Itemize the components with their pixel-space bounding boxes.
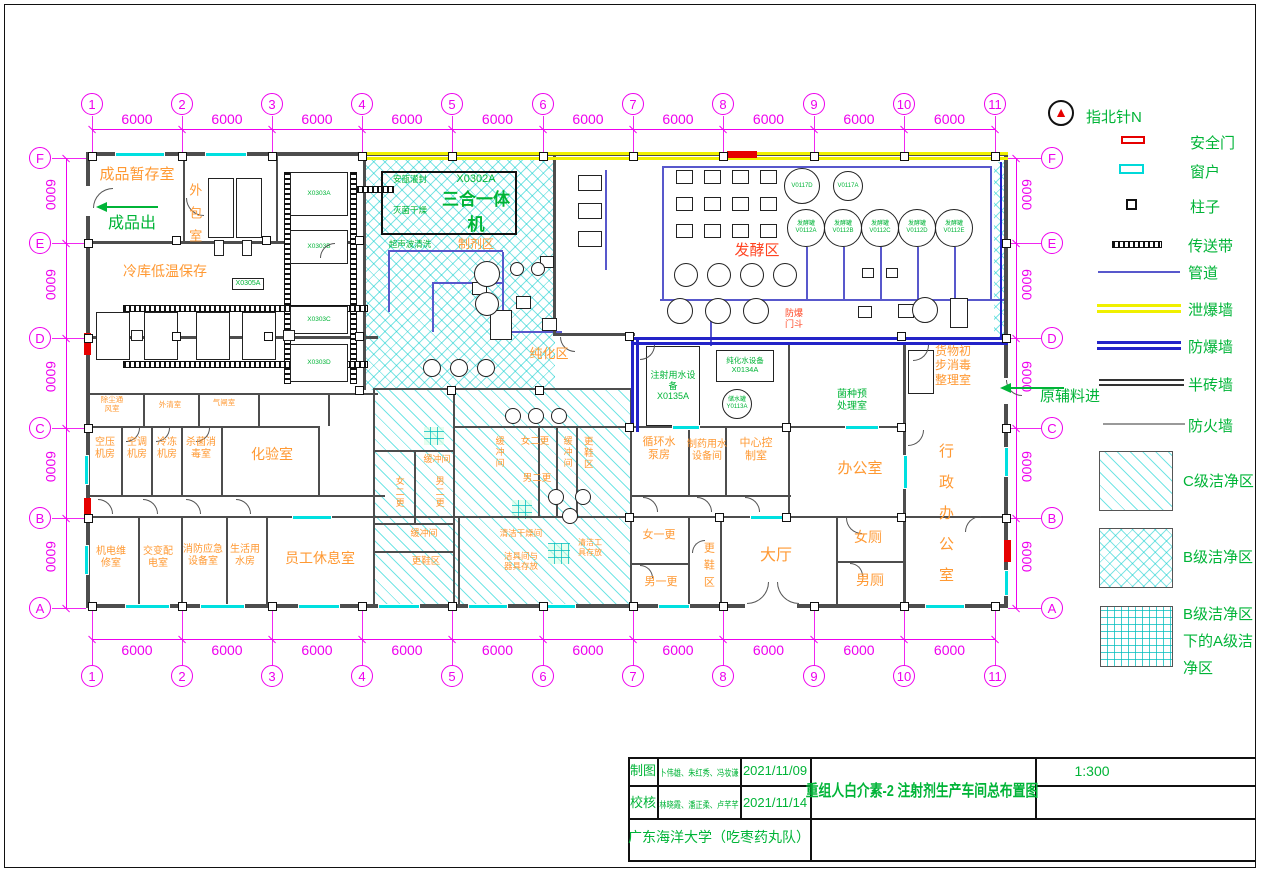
room-label: 货物初 步消毒 整理室 [935,344,971,387]
room-label: 缓冲间 [423,454,450,465]
equipment-box: X0303C [290,306,348,334]
room-label: 制药用水 设备间 [687,439,727,463]
check-names: 林晓霞、潘正柔、卢芊芊 [659,798,738,811]
dim-label: 6000 [1020,179,1034,210]
equipment-tank [707,263,731,287]
room-label: 气闸室 [213,398,236,407]
room-label: 除尘通 风室 [101,395,124,413]
equipment-box [704,197,721,211]
wall [375,523,453,525]
window [468,604,508,609]
equipment-tank [423,359,441,377]
equipment-tank [510,262,524,276]
room-label: 机电维 修室 [96,546,126,570]
check-date: 2021/11/14 [743,795,807,811]
equipment-tank: V0117D [784,168,820,204]
equipment-box [676,197,693,211]
equipment-box [760,170,777,184]
window [200,604,245,609]
equipment-tank [477,359,495,377]
pipe [880,247,882,301]
grid-circle-bottom: 4 [351,665,373,687]
grid-ext-line [1008,158,1041,159]
structural-column [268,602,277,611]
grid-ext-line [1008,428,1041,429]
wall [375,551,453,553]
pipe [432,282,434,332]
pipe-icon [1098,271,1180,273]
structural-column [268,152,277,161]
wall [328,395,330,426]
wall [788,345,790,518]
grid-ext-line [52,428,86,429]
equipment-tank [531,262,545,276]
door-arc [745,497,760,512]
wall [553,333,635,336]
structural-column [539,152,548,161]
wall [720,516,722,606]
wall [373,388,375,606]
equipment-box [950,298,968,328]
fire-wall-icon [1103,423,1185,425]
door-arc [98,499,113,514]
equipment-box [242,240,252,256]
equipment-box [542,318,557,331]
window [125,604,170,609]
room-label: 菌种预 处理室 [837,389,867,413]
room-label: 男厕 [856,572,884,589]
equipment-tank: 发酵罐 V0112A [787,209,825,247]
room-label: 更鞋区 [412,556,441,567]
door-arc [143,499,158,514]
structural-column [629,152,638,161]
pipe [662,166,664,301]
grid-circle-left: A [29,597,51,619]
drawing-scale: 1:300 [1074,763,1109,780]
equipment-box: 纯化水设备 X0134A [716,350,774,382]
grid-ext-line [272,116,273,152]
grid-circle-right: B [1041,507,1063,529]
room-label: 男二更 [523,473,552,484]
grid-ext-line [995,116,996,152]
structural-column [264,332,273,341]
pipe [954,247,956,301]
structural-column [88,602,97,611]
room-label: 女一更 [643,529,676,542]
window-icon [1119,164,1144,174]
structural-column [900,602,909,611]
structural-column [355,332,364,341]
structural-column [1002,424,1011,433]
grid-circle-left: E [29,232,51,254]
structural-column [358,602,367,611]
grid-ext-line [543,116,544,152]
wall [88,495,385,497]
dim-label: 6000 [482,642,513,659]
north-label: 指北针N [1086,106,1142,127]
room-label: 中心控 制室 [740,437,773,463]
door-arc [965,516,981,532]
grid-circle-bottom: 1 [81,665,103,687]
structural-column [84,514,93,523]
equipment-box [760,197,777,211]
door-arc [236,499,251,514]
grid-ext-line [52,608,86,609]
wall [362,152,1008,155]
grid-ext-line [1008,243,1041,244]
dim-label: 6000 [211,642,242,659]
structural-column [991,602,1000,611]
room-label: 冷库低温保存 [123,263,207,280]
grid-circle-bottom: 6 [532,665,554,687]
legend-label-fire-wall: 防火墙 [1188,415,1233,436]
dim-label: 6000 [211,111,242,128]
grid-ext-line [452,116,453,152]
column-icon [1126,199,1137,210]
clean-c-swatch [1099,451,1173,511]
wall [631,337,1008,340]
grid-circle-bottom: 5 [441,665,463,687]
equipment-tank [450,359,468,377]
grid-ext-line [723,116,724,152]
grid-circle-right: D [1041,327,1063,349]
equipment-box [236,178,262,238]
dim-label: 6000 [121,111,152,128]
structural-column [810,152,819,161]
room-label: 办公室 [837,460,882,478]
grid-circle-left: F [29,147,51,169]
structural-column [715,513,724,522]
door-arc [777,582,799,604]
equipment-box [886,268,898,278]
pipe [843,247,845,301]
room-label: 空调 机房 [127,437,147,461]
structural-column [897,423,906,432]
zone-label-preparation: 制剂区 [437,235,515,252]
grid-circle-top: 11 [984,93,1006,115]
room-label: 女二更 [395,476,404,509]
wall [86,152,90,608]
equipment-box: X0303A [290,172,348,216]
structural-column [178,152,187,161]
window [845,425,879,430]
legend-label-clean-b: B级洁净区 [1183,546,1253,567]
equipment-box [704,224,721,238]
flow-arrow-head [96,202,107,212]
window [672,425,700,430]
grid-circle-top: 9 [803,93,825,115]
wall [84,186,92,216]
equipment-box: X0305A [232,278,264,290]
wall [631,495,791,497]
safety-door-icon [1121,136,1145,144]
window [925,604,965,609]
grid-ext-line [904,608,905,666]
dim-label: 6000 [301,111,332,128]
window [84,455,89,485]
grid-ext-line [52,158,86,159]
equipment-tank [475,292,499,316]
wall [553,156,556,335]
legend-label-blast-wall: 防爆墙 [1188,336,1233,357]
dim-label: 6000 [44,541,58,572]
structural-column [719,152,728,161]
legend-label-window: 窗户 [1190,161,1220,182]
draw-date: 2021/11/09 [743,763,807,779]
grid-circle-bottom: 11 [984,665,1006,687]
grid-ext-line [452,608,453,666]
equipment-tank [773,263,797,287]
room-label: 大厅 [760,546,792,565]
room-label: 消防应急 设备室 [183,544,223,568]
wall [276,156,278,243]
dim-label: 6000 [301,642,332,659]
equipment-tank [575,489,591,505]
door-arc [186,499,201,514]
window [378,604,420,609]
dim-label: 6000 [753,642,784,659]
pipe [806,247,808,301]
grid-ext-line [52,518,86,519]
grid-ext-line [92,608,93,666]
machine-name: 三合一体机 [437,185,515,235]
drawing-title: 重组人白介素-2 注射剂生产车间总布置图 [806,777,1039,801]
structural-column [172,236,181,245]
equipment-tank [705,298,731,324]
dim-label: 6000 [843,111,874,128]
dim-label: 6000 [662,111,693,128]
grid-circle-bottom: 9 [803,665,825,687]
equipment-tank: 储水罐 Y0113A [722,389,752,419]
equipment-tank [740,263,764,287]
legend-label-clean-a: B级洁净区 下的A级洁 净区 [1183,601,1253,682]
grid-circle-bottom: 7 [622,665,644,687]
window [903,455,908,489]
dim-label: 6000 [121,642,152,659]
dim-label: 6000 [391,111,422,128]
structural-column [355,386,364,395]
machine-line2a: 灭菌干燥 [383,204,437,216]
equipment-box [676,224,693,238]
grid-ext-line [995,608,996,666]
structural-column [810,602,819,611]
structural-column [355,236,364,245]
window [205,152,247,157]
grid-ext-line [92,116,93,152]
room-label: 成品出 [108,214,156,233]
equipment-box: 注射用水设备 X0135A [646,346,700,426]
grid-circle-right: C [1041,417,1063,439]
structural-column [625,423,634,432]
structural-column [1002,239,1011,248]
room-label: 缓冲间 [410,528,437,539]
room-label: 更鞋区 [582,436,592,471]
room-label: 清洁工 具存放 [578,538,602,557]
structural-column [262,236,271,245]
floor-plan: X0303AX0303BX0303CX0303DX0305A注射用水设备 X01… [0,0,1265,874]
room-label: 男一更 [645,576,678,589]
structural-column [625,332,634,341]
wall [1000,162,1002,338]
draw-names: 卜伟雄、朱红秀、冯妆谦 [659,766,738,779]
three-in-one-machine: 安瓿灌封 X0302A 灭菌干燥 三合一体机 超声波清洗 制剂区 [381,171,517,235]
drawing-page: X0303AX0303BX0303CX0303DX0305A注射用水设备 X01… [0,0,1265,874]
equipment-box [732,197,749,211]
structural-column [448,152,457,161]
dim-label: 6000 [572,111,603,128]
structural-column [897,332,906,341]
equipment-box [732,224,749,238]
equipment-tank [912,297,938,323]
grid-circle-left: D [29,327,51,349]
legend-label-vent-wall: 泄爆墙 [1188,299,1233,320]
equipment-tank [562,508,578,524]
equipment-tank: 发酵罐 V0112B [824,209,862,247]
pipe [388,250,390,312]
wall [414,452,416,523]
structural-column [88,152,97,161]
room-label: 行政办公室 [938,443,953,598]
wall [631,337,634,432]
door-arc [697,497,712,512]
wall [258,395,260,426]
equipment-tank: 发酵罐 V0112C [861,209,899,247]
room-label: 化验室 [251,446,293,463]
equipment-box [732,170,749,184]
dim-label: 6000 [44,451,58,482]
window [298,604,340,609]
grid-circle-bottom: 2 [171,665,193,687]
dim-label: 6000 [934,642,965,659]
equipment-box: X0303D [290,344,348,382]
half-brick-wall-icon [1099,379,1184,386]
structural-column [629,602,638,611]
room-label: 男二更 [435,476,444,509]
room-label: 发酵区 [734,242,779,260]
equipment-box [96,312,130,360]
grid-ext-line [52,243,86,244]
equipment-tank [505,408,521,424]
grid-ext-line [1008,518,1041,519]
door-arc [747,582,769,604]
equipment-box [676,170,693,184]
machine-line3a: 超声波清洗 [383,238,437,250]
structural-column [1002,514,1011,523]
structural-column [84,424,93,433]
equipment-box [578,203,602,219]
wall [266,518,268,604]
equipment-box [858,306,872,318]
vent-wall-icon [1097,304,1181,313]
equipment-box [490,310,512,340]
room-label: 缓冲间 [563,436,572,469]
conveyor-icon [1112,241,1162,248]
grid-ext-line [52,338,86,339]
legend-label-conveyor: 传送带 [1188,235,1233,256]
check-label: 校核 [630,795,656,811]
grid-ext-line [362,116,363,152]
room-label: 循环水 泵房 [643,436,676,462]
grid-ext-line [272,608,273,666]
clean-a-swatch [1100,606,1173,667]
dim-label: 6000 [1020,269,1034,300]
wall [226,518,228,604]
equipment-box [578,231,602,247]
grid-ext-line [543,608,544,666]
equipment-tank [743,298,769,324]
equipment-tank: 发酵罐 V0112D [898,209,936,247]
pipe [990,166,992,301]
structural-column [782,513,791,522]
dim-label: 6000 [44,269,58,300]
room-label: 纯化区 [529,346,568,362]
room-label: 外清室 [159,400,182,409]
dim-label: 6000 [44,361,58,392]
north-compass-icon: ▲ [1048,100,1074,126]
equipment-tank: V0117A [833,171,863,201]
structural-column [447,386,456,395]
grid-ext-line [814,608,815,666]
equipment-box [516,296,531,309]
equipment-tank [548,489,564,505]
wall [631,426,791,428]
room-label: 防爆 门斗 [785,308,803,330]
room-label: 员工休息室 [285,550,355,567]
dim-label: 6000 [1020,451,1034,482]
pipe [917,247,919,301]
grid-ext-line [182,116,183,152]
room-label: 成品暂存室 [99,166,174,184]
grid-ext-line [904,116,905,152]
room-label: 外包室 [188,183,201,252]
dim-label: 6000 [843,642,874,659]
door-arc [643,497,658,512]
structural-column [178,602,187,611]
equipment-box [704,170,721,184]
grid-circle-right: A [1041,597,1063,619]
equipment-box [283,330,295,341]
dim-label: 6000 [44,179,58,210]
legend-label-safety-door: 安全门 [1190,132,1235,153]
equipment-box [208,178,234,238]
legend-label-half-brick-wall: 半砖墙 [1188,374,1233,395]
grid-ext-line [723,608,724,666]
structural-column [900,152,909,161]
dim-label: 6000 [753,111,784,128]
dim-label: 6000 [934,111,965,128]
wall [636,337,639,432]
dim-line [66,158,67,608]
grid-circle-top: 5 [441,93,463,115]
dim-label: 6000 [662,642,693,659]
structural-column [539,602,548,611]
structural-column [84,334,93,343]
structural-column [625,513,634,522]
machine-code: X0302A [437,173,515,185]
structural-column [991,152,1000,161]
pipe [605,170,607,270]
equipment-tank [528,408,544,424]
wall [88,393,378,395]
wall [183,156,185,243]
blast-wall-icon [1097,341,1181,350]
equipment-tank [674,263,698,287]
window [1004,570,1009,596]
grid-ext-line [1008,608,1041,609]
equipment-tank [474,261,500,287]
machine-line1a: 安瓿灌封 [383,173,437,185]
grid-ext-line [633,608,634,666]
